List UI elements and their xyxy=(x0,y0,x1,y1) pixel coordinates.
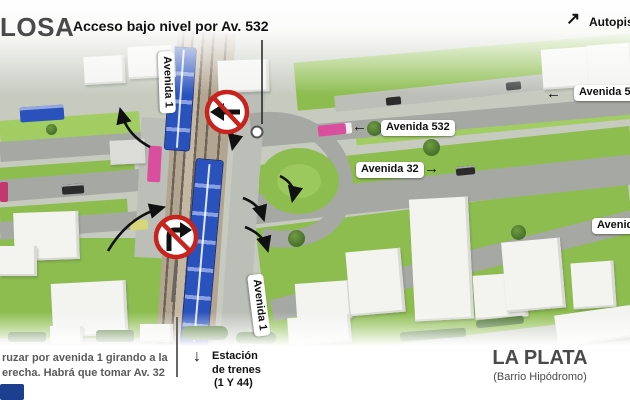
bus xyxy=(0,384,24,400)
callout-line xyxy=(252,40,263,138)
arrow-left-icon: ← xyxy=(352,119,367,134)
label-avenida-edge: Avenida xyxy=(592,218,630,234)
station-line-2: de trenes xyxy=(212,364,261,378)
note-line-2: erecha. Habrá que tomar Av. 32 xyxy=(2,366,168,381)
district-label: LOSA xyxy=(0,12,74,43)
station-line-3: (1 Y 44) xyxy=(212,377,261,391)
infographic: ← Avenida 532 Avenida 32 → ← Avenida 532… xyxy=(0,0,630,400)
label-avenida-1-north: Avenida 1 xyxy=(158,51,176,113)
note-text: ruzar por avenida 1 girando a la erecha.… xyxy=(2,351,168,381)
no-left-turn-sign xyxy=(207,92,247,132)
note-line-1: ruzar por avenida 1 girando a la xyxy=(2,351,168,366)
city-block: LA PLATA (Barrio Hipódromo) xyxy=(460,347,620,383)
arrow-right-icon: → xyxy=(424,161,439,176)
annotation-overlay xyxy=(0,0,630,348)
autopista-arrow-icon: ↗ xyxy=(566,11,580,26)
label-avenida-532-far: Avenida 532 xyxy=(574,85,630,101)
city-name: LA PLATA xyxy=(460,347,620,370)
station-label: Estación de trenes (1 Y 44) xyxy=(212,350,261,391)
label-avenida-32: Avenida 32 xyxy=(356,162,424,178)
no-right-turn-sign xyxy=(156,217,196,302)
traffic-flow-arrows xyxy=(108,112,293,251)
autopista-label: Autopista xyxy=(589,15,630,29)
station-arrow-icon: ↓ xyxy=(193,349,201,364)
label-avenida-532: Avenida 532 xyxy=(381,120,455,136)
city-subtitle: (Barrio Hipódromo) xyxy=(460,371,620,383)
map-title: Acceso bajo nivel por Av. 532 xyxy=(73,18,269,34)
station-line-1: Estación xyxy=(212,350,261,364)
map-scene: ← Avenida 532 Avenida 32 → ← Avenida 532… xyxy=(0,0,630,348)
caption-band: ruzar por avenida 1 girando a la erecha.… xyxy=(0,346,630,400)
arrow-left-icon: ← xyxy=(546,86,561,101)
caption-divider xyxy=(176,317,178,377)
